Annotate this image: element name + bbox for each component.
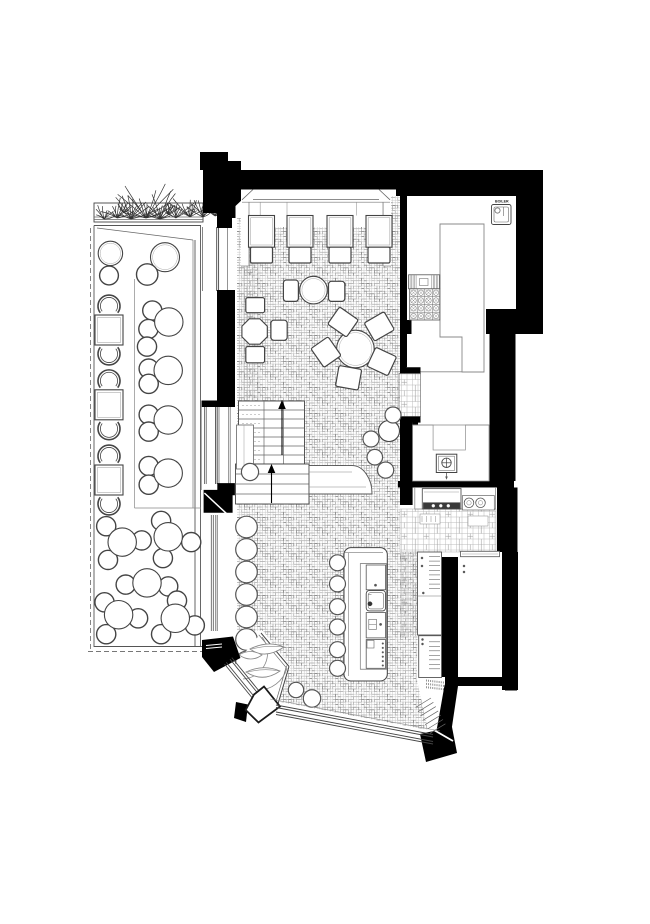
svg-text:BOILER: BOILER [495,200,509,204]
